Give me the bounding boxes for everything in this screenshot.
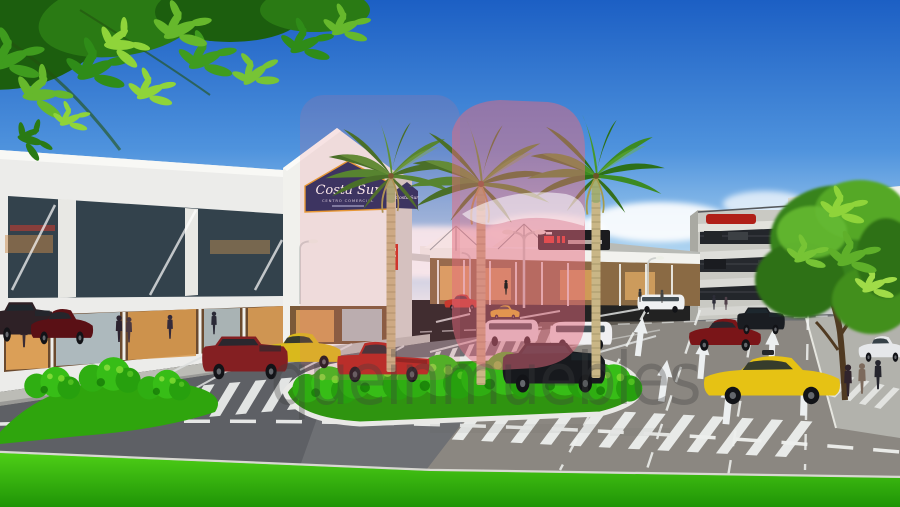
watermark-text: queinmuebles [270,337,700,421]
rendering-canvas: Costa Sur CENTRO COMERCIAL Costa Sur [0,0,900,507]
watermark-subline-2 [610,428,670,436]
scene-svg: Costa Sur CENTRO COMERCIAL Costa Sur [0,0,900,507]
watermark-subline [430,424,600,433]
taxi-roof-sign [762,350,774,355]
